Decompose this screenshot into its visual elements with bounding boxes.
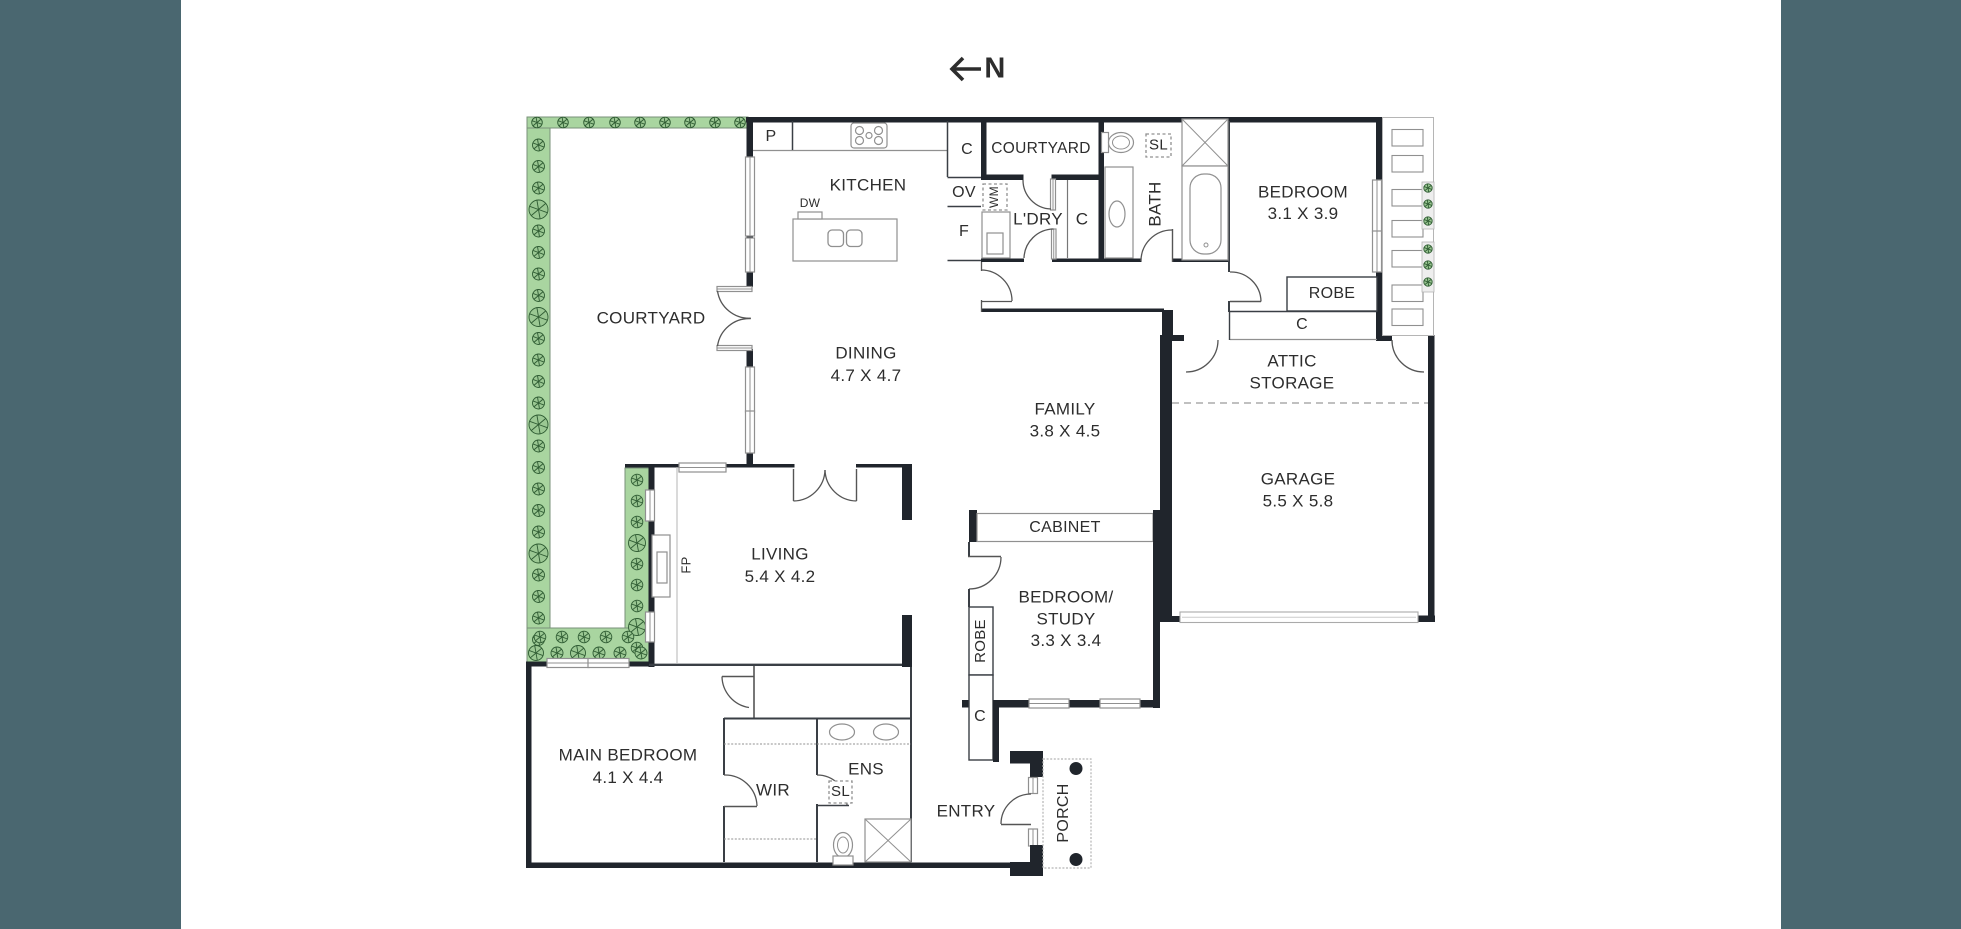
svg-text:4.1 X 4.4: 4.1 X 4.4 bbox=[593, 768, 664, 787]
svg-text:ROBE: ROBE bbox=[1309, 285, 1356, 302]
svg-text:PORCH: PORCH bbox=[1055, 783, 1072, 842]
svg-text:DW: DW bbox=[800, 196, 821, 210]
svg-text:4.7 X 4.7: 4.7 X 4.7 bbox=[831, 366, 902, 385]
svg-text:5.5 X 5.8: 5.5 X 5.8 bbox=[1263, 491, 1334, 510]
svg-text:KITCHEN: KITCHEN bbox=[830, 175, 907, 194]
svg-text:OV: OV bbox=[952, 184, 976, 201]
svg-text:ENTRY: ENTRY bbox=[937, 801, 996, 820]
svg-text:C: C bbox=[1076, 209, 1089, 228]
svg-text:DINING: DINING bbox=[835, 343, 896, 362]
svg-text:N: N bbox=[984, 53, 1005, 85]
svg-text:STUDY: STUDY bbox=[1036, 609, 1095, 628]
svg-text:WIR: WIR bbox=[756, 780, 790, 799]
svg-text:CABINET: CABINET bbox=[1029, 519, 1100, 536]
svg-text:STORAGE: STORAGE bbox=[1250, 373, 1335, 392]
svg-text:L'DRY: L'DRY bbox=[1013, 209, 1063, 228]
svg-text:C: C bbox=[1296, 316, 1308, 333]
svg-text:5.4 X 4.2: 5.4 X 4.2 bbox=[745, 567, 816, 586]
svg-text:BEDROOM: BEDROOM bbox=[1258, 182, 1348, 201]
svg-text:MAIN BEDROOM: MAIN BEDROOM bbox=[559, 745, 698, 764]
svg-text:ROBE: ROBE bbox=[972, 619, 989, 663]
svg-text:ENS: ENS bbox=[848, 759, 884, 778]
svg-text:F: F bbox=[959, 223, 969, 240]
svg-text:SL: SL bbox=[1149, 136, 1168, 153]
svg-text:SL: SL bbox=[831, 783, 850, 800]
svg-text:COURTYARD: COURTYARD bbox=[597, 308, 706, 327]
svg-text:ATTIC: ATTIC bbox=[1267, 351, 1316, 370]
svg-text:P: P bbox=[766, 128, 777, 145]
svg-text:COURTYARD: COURTYARD bbox=[991, 140, 1090, 157]
svg-text:3.1 X 3.9: 3.1 X 3.9 bbox=[1268, 204, 1339, 223]
svg-text:FAMILY: FAMILY bbox=[1034, 399, 1095, 418]
svg-text:3.8 X 4.5: 3.8 X 4.5 bbox=[1030, 421, 1101, 440]
svg-text:BATH: BATH bbox=[1145, 181, 1164, 226]
svg-text:LIVING: LIVING bbox=[751, 544, 809, 563]
svg-text:GARAGE: GARAGE bbox=[1261, 469, 1336, 488]
svg-text:WM: WM bbox=[987, 186, 1001, 208]
svg-text:C: C bbox=[961, 141, 973, 158]
svg-text:FP: FP bbox=[678, 556, 693, 573]
svg-text:3.3 X 3.4: 3.3 X 3.4 bbox=[1031, 631, 1102, 650]
svg-text:C: C bbox=[974, 708, 986, 725]
svg-text:BEDROOM/: BEDROOM/ bbox=[1019, 587, 1114, 606]
